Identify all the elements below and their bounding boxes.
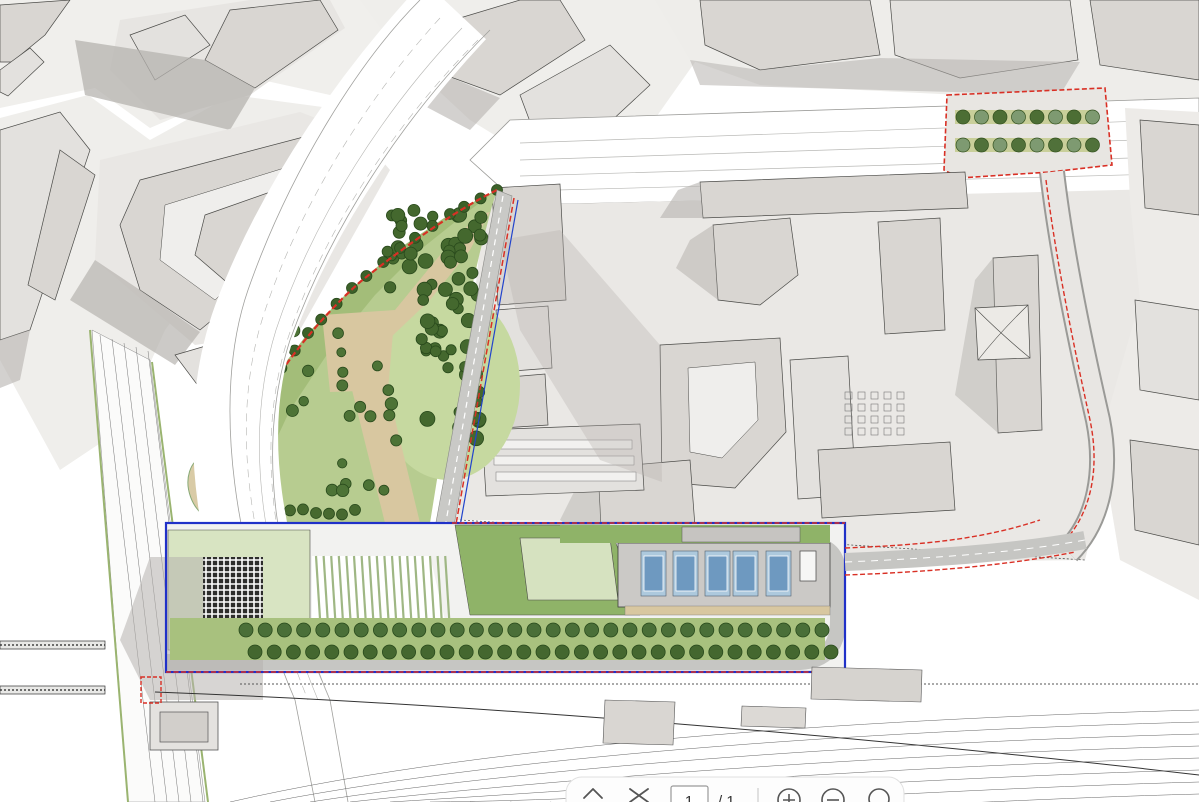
svg-text:1: 1 [685,793,693,802]
svg-text:/ 1: / 1 [718,793,735,802]
